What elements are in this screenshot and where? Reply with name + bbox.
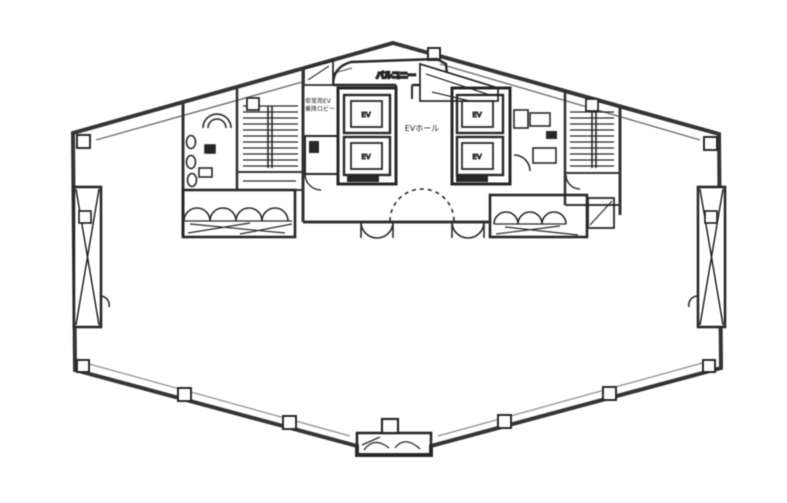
fire-shutter-dashed-arc bbox=[390, 189, 454, 221]
bottom-bay bbox=[357, 419, 431, 455]
right-brace-panel bbox=[689, 187, 725, 327]
ev-label: EV bbox=[472, 111, 481, 119]
planter-left bbox=[183, 190, 295, 237]
wc-left bbox=[187, 114, 232, 186]
planter-right bbox=[490, 195, 614, 237]
stair-left bbox=[243, 98, 298, 181]
elevator-car: EV bbox=[457, 137, 503, 175]
elevator-car: EV bbox=[344, 137, 390, 175]
lobby-label-line2: 乗降ロビー bbox=[305, 105, 335, 113]
stair-right bbox=[566, 99, 614, 189]
ev-label: EV bbox=[361, 153, 370, 161]
elevator-car: EV bbox=[344, 95, 390, 133]
ev-lobby: 非常用EV 乗降ロビー bbox=[305, 97, 338, 190]
ev-label: EV bbox=[361, 111, 370, 119]
elevator-bank-left: EV EV bbox=[338, 88, 396, 184]
floor-plan-svg: バルコニー bbox=[0, 0, 787, 503]
lobby-label-line1: 非常用EV bbox=[305, 97, 332, 105]
entrance-doors bbox=[361, 222, 484, 238]
floor-plan-drawing: バルコニー bbox=[0, 0, 787, 503]
ev-label: EV bbox=[472, 153, 481, 161]
left-brace-panel bbox=[74, 187, 109, 327]
shaft-closet bbox=[305, 136, 338, 190]
elevator-bank-right: EV EV bbox=[452, 88, 510, 184]
elevator-hall-label: EVホール bbox=[405, 124, 440, 133]
service-room-right bbox=[514, 110, 557, 171]
floor-plan-page: バルコニー bbox=[0, 0, 787, 503]
balcony-label: バルコニー bbox=[376, 71, 416, 80]
